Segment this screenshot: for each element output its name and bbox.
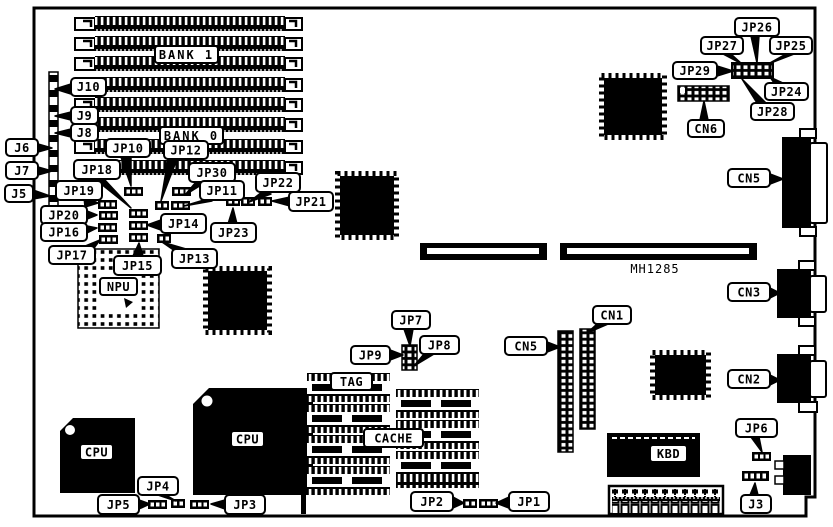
svg-text:JP21: JP21	[296, 195, 327, 209]
jumper-jp15	[129, 233, 148, 242]
svg-text:JP4: JP4	[146, 480, 169, 494]
svg-text:JP18: JP18	[82, 163, 113, 177]
svg-text:CN3: CN3	[737, 286, 760, 300]
power-connector	[609, 486, 723, 514]
jumper-jp13	[157, 234, 171, 243]
motherboard-diagram: MH1285 J10 J9 J8 J6 J7 J5 BANK 1 BANK 0 …	[0, 0, 833, 527]
svg-text:CN5: CN5	[514, 340, 537, 354]
part-number-text: MH1285	[630, 262, 679, 276]
svg-text:CPU: CPU	[85, 446, 108, 460]
svg-text:NPU: NPU	[107, 280, 130, 294]
svg-text:JP7: JP7	[399, 314, 422, 328]
svg-text:JP12: JP12	[171, 144, 202, 158]
svg-text:JP23: JP23	[218, 226, 249, 240]
svg-text:J8: J8	[77, 126, 92, 140]
jumper-jp14	[129, 221, 148, 230]
svg-text:CN1: CN1	[600, 309, 623, 323]
jumper-jp12	[155, 201, 169, 210]
header-j3	[742, 471, 769, 481]
jumper-jp17	[99, 235, 118, 244]
qfp-chip-right	[653, 353, 709, 398]
svg-text:BANK 1: BANK 1	[159, 48, 214, 62]
svg-text:J3: J3	[748, 498, 763, 512]
svg-text:JP6: JP6	[745, 422, 768, 436]
board-svg: MH1285 J10 J9 J8 J6 J7 J5 BANK 1 BANK 0 …	[0, 0, 833, 527]
pin1-dot	[202, 396, 213, 407]
jumper-jp20	[99, 211, 118, 220]
jumper-jp16	[98, 223, 117, 232]
jumper-jp5	[148, 500, 167, 509]
svg-text:JP30: JP30	[197, 166, 228, 180]
svg-text:JP9: JP9	[359, 349, 382, 363]
svg-text:TAG: TAG	[340, 375, 363, 389]
svg-text:JP20: JP20	[49, 209, 80, 223]
callout-cpu-large: CPU	[231, 431, 264, 447]
svg-text:JP24: JP24	[771, 85, 802, 99]
svg-text:JP27: JP27	[707, 39, 738, 53]
svg-text:JP29: JP29	[680, 64, 711, 78]
jumper-jp2	[463, 499, 477, 508]
callout-kbd: KBD	[650, 445, 687, 462]
svg-text:JP8: JP8	[428, 339, 451, 353]
svg-text:JP11: JP11	[207, 184, 238, 198]
qfp-chip-mid	[338, 174, 397, 238]
svg-text:CN2: CN2	[737, 373, 760, 387]
callout-tag: TAG	[331, 373, 372, 390]
svg-text:J9: J9	[77, 109, 92, 123]
qfp-chip-topright	[602, 76, 665, 138]
header-cn1	[580, 329, 595, 429]
svg-text:J5: J5	[11, 187, 26, 201]
callout-cpu-small: CPU	[80, 444, 113, 460]
svg-text:JP17: JP17	[57, 249, 88, 263]
db9-connector-cn2	[777, 346, 826, 412]
jumper-jp10	[124, 187, 143, 196]
svg-text:CN6: CN6	[694, 122, 717, 136]
svg-text:JP14: JP14	[168, 217, 199, 231]
callout-npu: NPU	[100, 278, 137, 295]
svg-text:KBD: KBD	[657, 447, 680, 461]
jumper-jp3	[190, 500, 209, 509]
svg-text:JP5: JP5	[107, 498, 130, 512]
svg-text:JP15: JP15	[122, 259, 153, 273]
jumper-jp1	[479, 499, 498, 508]
svg-text:JP16: JP16	[49, 226, 80, 240]
jumper-jp18	[129, 209, 148, 218]
svg-text:CACHE: CACHE	[374, 432, 413, 446]
svg-text:JP1: JP1	[517, 495, 540, 509]
svg-text:JP26: JP26	[742, 21, 773, 35]
svg-text:JP3: JP3	[233, 498, 256, 512]
svg-text:J10: J10	[77, 80, 100, 94]
svg-text:CPU: CPU	[236, 433, 259, 447]
jumper-jp19	[98, 200, 117, 209]
svg-text:JP10: JP10	[113, 142, 144, 156]
svg-text:JP25: JP25	[776, 39, 807, 53]
svg-text:J6: J6	[14, 141, 29, 155]
svg-text:JP2: JP2	[420, 495, 443, 509]
sip-resistor-pack	[301, 394, 306, 514]
svg-text:CN5: CN5	[737, 172, 760, 186]
jumper-jp6	[752, 452, 771, 461]
db9-connector-cn3	[777, 261, 826, 326]
header-cn6	[678, 86, 729, 101]
header-cn5	[558, 331, 573, 452]
slot-2	[560, 243, 757, 260]
slot-1	[420, 243, 547, 260]
callout-bank1: BANK 1	[155, 46, 218, 63]
callout-cache: CACHE	[364, 429, 423, 447]
svg-text:JP28: JP28	[757, 105, 788, 119]
svg-text:JP19: JP19	[64, 184, 95, 198]
db25-connector-cn5	[782, 129, 827, 236]
svg-text:JP13: JP13	[179, 252, 210, 266]
qfp-chip-left	[206, 269, 270, 333]
svg-text:J7: J7	[14, 164, 29, 178]
jumper-block-jp24-29	[732, 63, 773, 78]
svg-text:JP22: JP22	[263, 176, 294, 190]
pin1-dot	[65, 425, 75, 435]
